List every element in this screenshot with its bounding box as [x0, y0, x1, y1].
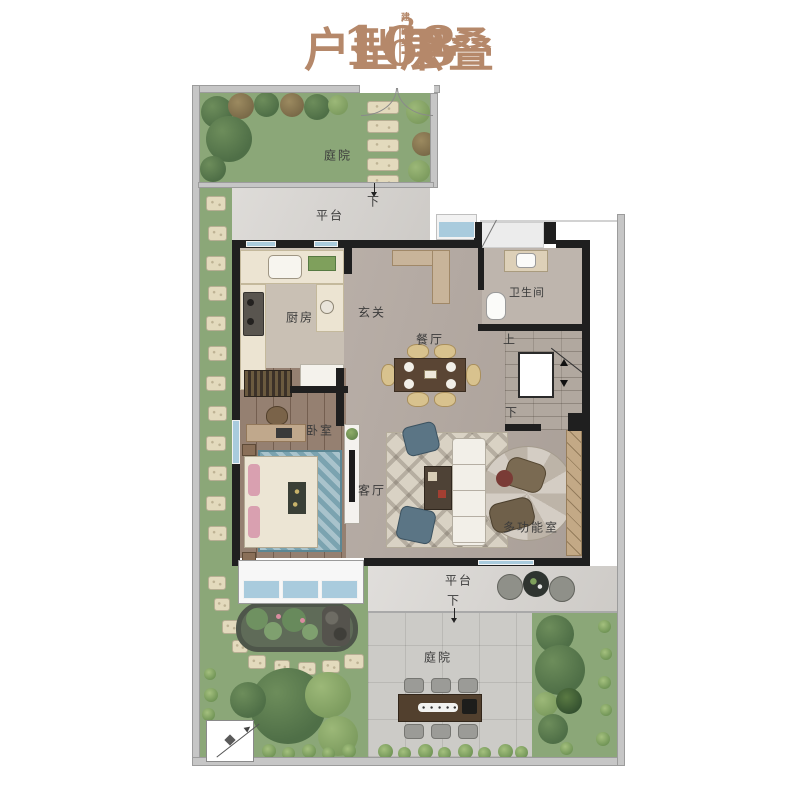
plate-icon	[404, 379, 414, 389]
multi-window	[478, 560, 534, 565]
stepping-stone	[367, 120, 399, 133]
bush-icon	[204, 688, 218, 702]
stepping-stone	[344, 654, 364, 669]
room-label-foyer: 玄关	[358, 304, 386, 321]
cutting-board-icon	[308, 256, 336, 271]
plate-icon	[446, 362, 456, 372]
stepping-stone	[208, 576, 226, 590]
toilet-icon	[486, 292, 506, 320]
porch-window	[438, 221, 475, 238]
compass-needle-icon	[216, 723, 259, 757]
stepping-stone	[208, 226, 227, 241]
kitchen-window	[314, 241, 338, 247]
step-down-top-label: 下	[367, 193, 381, 210]
room-label-courtyard-bottom: 庭院	[424, 649, 452, 666]
stepping-stone	[367, 158, 399, 171]
tree-icon	[305, 672, 351, 718]
lotus-flower-icon	[276, 614, 281, 619]
tree-icon	[200, 156, 226, 182]
floorplan-page: 168 建面约m2 户型下叠 一层 庭院 平台 下	[0, 0, 800, 800]
kitchen-window	[246, 241, 276, 247]
table-runner-icon	[418, 703, 458, 712]
stairs-up-label: 上	[503, 331, 517, 348]
stepping-stone	[322, 660, 340, 673]
bush-icon	[204, 668, 216, 680]
bedroom-side-window	[232, 420, 240, 464]
platform-bottom	[364, 566, 617, 612]
wardrobe-icon	[244, 370, 292, 397]
stepping-stone	[248, 655, 266, 669]
lotus-flower-icon	[300, 618, 305, 623]
bush-icon	[560, 742, 573, 755]
tree-icon	[280, 93, 304, 117]
tree-icon	[556, 688, 582, 714]
stool-icon	[431, 678, 451, 693]
tree-icon	[328, 95, 348, 115]
table-item-icon	[428, 472, 437, 481]
kitchen-sink-icon	[268, 255, 302, 279]
room-label-multi: 多功能室	[503, 519, 559, 536]
room-label-kitchen: 厨房	[286, 309, 314, 326]
stool-icon	[496, 470, 513, 487]
armchair-icon	[395, 505, 437, 546]
dining-chair-icon	[407, 392, 429, 407]
bush-icon	[600, 648, 612, 660]
bush-icon	[596, 732, 610, 746]
wall-shelf	[566, 430, 582, 556]
down-arrow-icon	[560, 380, 568, 391]
stepping-stone	[206, 316, 226, 331]
outdoor-chair-icon	[549, 576, 575, 602]
kitchen-pot-icon	[320, 300, 334, 314]
bed-runner-icon	[288, 482, 306, 514]
bush-icon	[342, 744, 356, 758]
bay-window-pane	[243, 580, 280, 599]
room-label-dining: 餐厅	[416, 331, 444, 348]
plate-icon	[446, 379, 456, 389]
stairs-down-label: 下	[505, 404, 519, 421]
stepping-stone	[206, 376, 226, 391]
outdoor-chair-icon	[497, 574, 523, 600]
stepping-stone	[208, 406, 227, 421]
burner-icon	[247, 318, 254, 325]
stepping-stone	[214, 598, 230, 611]
wall-bedroom-right	[336, 368, 344, 426]
room-label-courtyard-top: 庭院	[324, 147, 352, 164]
stool-icon	[431, 724, 451, 739]
frame-bottom	[192, 757, 625, 766]
frame-right	[617, 214, 625, 766]
entry-porch	[480, 222, 544, 248]
dining-chair-icon	[466, 364, 481, 386]
plant-icon	[346, 428, 358, 440]
bay-window-pane	[282, 580, 319, 599]
nightstand-icon	[242, 444, 256, 456]
plate-icon	[404, 362, 414, 372]
centerpiece-icon	[424, 370, 437, 379]
wall-bathroom-bottom	[478, 324, 590, 331]
pillow-icon	[248, 506, 260, 538]
wall-bathroom-left	[478, 248, 484, 290]
stepping-stone	[367, 139, 399, 152]
table-item-icon	[438, 490, 446, 498]
lotus-leaf-icon	[264, 622, 282, 640]
compass-arrow-icon	[244, 722, 255, 732]
step-down-bottom-label: 下	[447, 592, 461, 609]
platform-edge-line	[368, 611, 617, 613]
rock-icon	[322, 606, 350, 646]
down-arrow-icon	[374, 183, 375, 192]
stepping-stone	[208, 466, 227, 481]
wall-right	[582, 240, 590, 566]
tree-icon	[534, 692, 558, 716]
stepping-stone	[206, 196, 226, 211]
bay-window-pane	[321, 580, 358, 599]
courtyard-platform-divider	[198, 182, 434, 188]
frame-top-left	[192, 85, 360, 93]
stepping-stone	[206, 496, 226, 511]
stove-icon	[243, 292, 264, 336]
stool-icon	[458, 678, 478, 693]
pillow-icon	[248, 464, 260, 496]
bush-icon	[598, 620, 611, 633]
wall-stairs-corner	[568, 413, 590, 431]
dining-chair-icon	[434, 392, 456, 407]
grill-icon	[462, 699, 477, 714]
room-label-bedroom: 卧室	[306, 422, 334, 439]
stepping-stone	[208, 286, 227, 301]
down-arrow-icon	[454, 608, 455, 618]
entry-wall-post	[544, 222, 556, 244]
tree-icon	[538, 714, 568, 744]
tree-icon	[230, 682, 266, 718]
outdoor-table-icon	[523, 571, 549, 597]
stepping-stone	[208, 526, 227, 541]
room-label-platform-bottom: 平台	[445, 572, 473, 589]
sofa-icon	[452, 438, 486, 546]
stepping-stone	[208, 346, 227, 361]
burner-icon	[247, 299, 254, 306]
stair-landing	[518, 352, 554, 398]
wall-left	[232, 240, 240, 566]
room-label-platform-top: 平台	[316, 207, 344, 224]
tree-icon	[535, 645, 585, 695]
lotus-leaf-icon	[302, 624, 318, 640]
tree-icon	[408, 160, 430, 182]
stool-icon	[404, 678, 424, 693]
compass	[206, 720, 254, 762]
tree-icon	[254, 92, 279, 117]
up-arrow-icon	[560, 355, 568, 366]
wall-kitchen-foyer	[344, 240, 352, 274]
foyer-cabinet	[432, 250, 450, 304]
wall-bottom	[364, 558, 590, 566]
stepping-stone	[206, 256, 226, 271]
laptop-icon	[276, 428, 292, 438]
page-title: 168 建面约m2 户型下叠 一层	[0, 14, 800, 74]
tree-icon	[228, 93, 254, 119]
tv-icon	[349, 450, 355, 502]
bush-icon	[262, 744, 276, 758]
floor-label: 一层	[350, 14, 450, 80]
bush-icon	[600, 704, 612, 716]
basin-icon	[516, 253, 536, 268]
room-label-living: 客厅	[358, 482, 386, 499]
room-label-bathroom: 卫生间	[509, 284, 545, 300]
stool-icon	[404, 724, 424, 739]
wall-stairs-bottom	[505, 424, 541, 431]
bush-icon	[302, 744, 316, 758]
tree-icon	[304, 94, 330, 120]
stool-icon	[458, 724, 478, 739]
bush-icon	[598, 676, 611, 689]
stepping-stone	[206, 436, 226, 451]
desk-chair-icon	[266, 406, 288, 425]
